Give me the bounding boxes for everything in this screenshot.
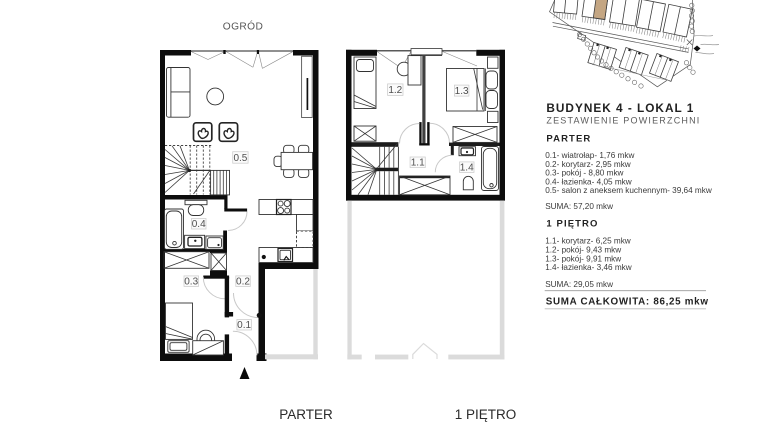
svg-text:1.2: 1.2 bbox=[388, 85, 402, 96]
svg-text:0.3- pokój - 8,80 mkw: 0.3- pokój - 8,80 mkw bbox=[545, 169, 623, 178]
svg-text:0.1- wiatrołap- 1,76 mkw: 0.1- wiatrołap- 1,76 mkw bbox=[545, 151, 634, 160]
svg-text:1.3: 1.3 bbox=[455, 86, 469, 97]
svg-text:SUMA: 57,20 mkw: SUMA: 57,20 mkw bbox=[545, 202, 613, 211]
svg-text:1.1: 1.1 bbox=[411, 158, 425, 169]
svg-text:0.1: 0.1 bbox=[237, 320, 251, 331]
svg-text:0.4: 0.4 bbox=[192, 219, 206, 230]
svg-text:0.5- salon z aneksem kuchennym: 0.5- salon z aneksem kuchennym- 39,64 mk… bbox=[545, 186, 712, 195]
svg-text:OGRÓD: OGRÓD bbox=[223, 20, 264, 33]
svg-text:0.4- łazienka- 4,05 mkw: 0.4- łazienka- 4,05 mkw bbox=[545, 177, 632, 186]
svg-text:1 PIĘTRO: 1 PIĘTRO bbox=[546, 219, 598, 230]
svg-text:0.2: 0.2 bbox=[236, 276, 250, 287]
svg-text:PARTER: PARTER bbox=[279, 407, 333, 422]
svg-text:SUMA: 29,05 mkw: SUMA: 29,05 mkw bbox=[545, 280, 613, 289]
svg-text:BUDYNEK 4 - LOKAL 1: BUDYNEK 4 - LOKAL 1 bbox=[546, 101, 694, 115]
svg-text:PARTER: PARTER bbox=[546, 134, 591, 145]
svg-text:ZESTAWIENIE POWIERZCHNI: ZESTAWIENIE POWIERZCHNI bbox=[546, 116, 700, 126]
svg-text:SUMA CAŁKOWITA: 86,25 mkw: SUMA CAŁKOWITA: 86,25 mkw bbox=[546, 297, 709, 308]
svg-text:1.2- pokój- 9,43 mkw: 1.2- pokój- 9,43 mkw bbox=[545, 246, 621, 255]
svg-text:1 PIĘTRO: 1 PIĘTRO bbox=[455, 407, 517, 422]
svg-text:0.3: 0.3 bbox=[184, 276, 198, 287]
svg-text:0.5: 0.5 bbox=[233, 153, 247, 164]
svg-text:1.1- korytarz- 6,25 mkw: 1.1- korytarz- 6,25 mkw bbox=[545, 237, 631, 246]
svg-text:0.2- korytarz- 2,95 mkw: 0.2- korytarz- 2,95 mkw bbox=[545, 160, 631, 169]
svg-text:1.4- łazienka- 3,46 mkw: 1.4- łazienka- 3,46 mkw bbox=[545, 263, 632, 272]
svg-text:1.4: 1.4 bbox=[460, 162, 474, 173]
